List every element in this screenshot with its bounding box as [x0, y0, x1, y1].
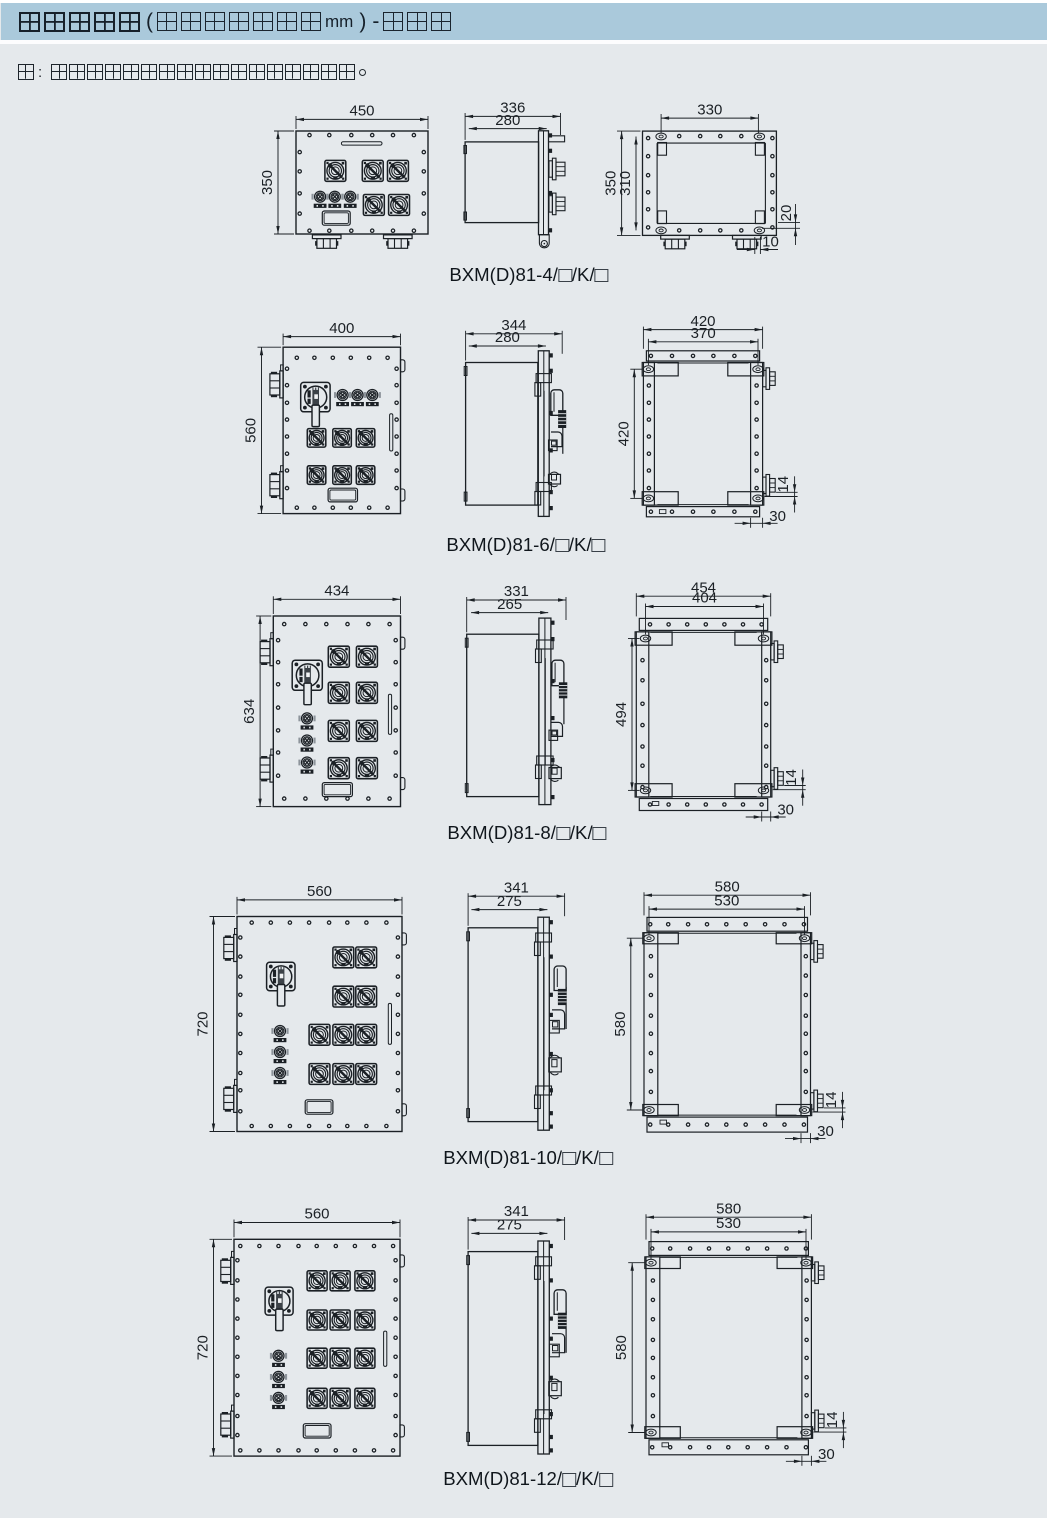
- svg-text:350: 350: [259, 170, 276, 195]
- svg-text:275: 275: [497, 1217, 522, 1234]
- svg-text:400: 400: [329, 320, 354, 337]
- svg-text:580: 580: [613, 1335, 630, 1360]
- svg-text:14: 14: [783, 769, 800, 786]
- svg-text:634: 634: [241, 699, 258, 724]
- svg-text:720: 720: [195, 1011, 212, 1036]
- svg-text:420: 420: [615, 421, 632, 446]
- svg-text:30: 30: [777, 802, 794, 819]
- svg-text:494: 494: [613, 702, 630, 727]
- svg-text:330: 330: [697, 101, 722, 118]
- svg-text:580: 580: [612, 1012, 629, 1037]
- svg-text:14: 14: [775, 476, 792, 493]
- svg-text:560: 560: [304, 1206, 329, 1223]
- svg-text:560: 560: [243, 418, 260, 443]
- svg-text:275: 275: [497, 893, 522, 910]
- svg-text:20: 20: [778, 205, 795, 222]
- svg-text:30: 30: [769, 508, 786, 525]
- svg-text:530: 530: [716, 1215, 741, 1232]
- svg-text:280: 280: [495, 329, 520, 346]
- svg-text:30: 30: [817, 1123, 834, 1140]
- svg-text:265: 265: [497, 596, 522, 613]
- svg-text:310: 310: [617, 171, 634, 196]
- svg-text:14: 14: [824, 1412, 841, 1429]
- svg-text:14: 14: [823, 1092, 840, 1109]
- svg-text:404: 404: [692, 590, 717, 607]
- svg-text:720: 720: [195, 1335, 212, 1360]
- svg-text:434: 434: [324, 583, 349, 600]
- svg-text:280: 280: [495, 112, 520, 129]
- svg-text:10: 10: [762, 234, 779, 251]
- svg-text:450: 450: [349, 103, 374, 120]
- svg-text:530: 530: [714, 892, 739, 909]
- svg-text:560: 560: [307, 883, 332, 900]
- svg-text:370: 370: [691, 325, 716, 342]
- svg-text:30: 30: [818, 1446, 835, 1463]
